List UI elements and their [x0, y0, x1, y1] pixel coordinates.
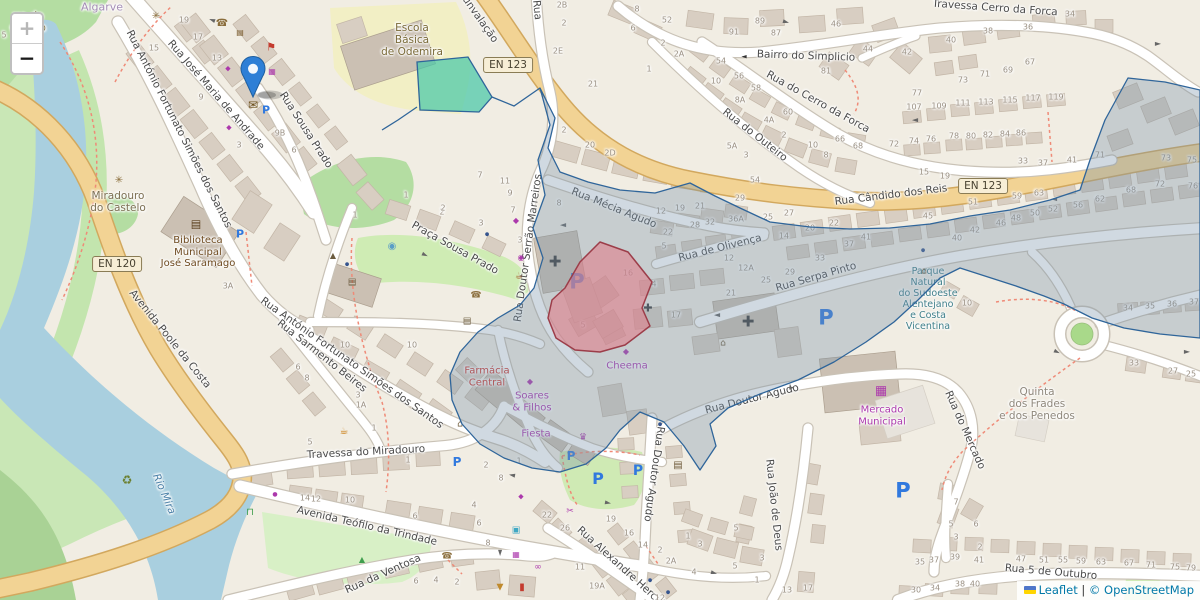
building [913, 539, 932, 553]
building [1026, 132, 1043, 144]
building [1095, 547, 1113, 561]
building [811, 524, 826, 543]
building [814, 240, 838, 256]
zoom-in-button[interactable]: + [12, 14, 42, 44]
building [797, 571, 815, 592]
building [692, 333, 720, 354]
building [966, 138, 983, 150]
ukraine-flag-icon [1024, 586, 1036, 594]
building [1173, 553, 1191, 567]
building [870, 231, 894, 247]
building [951, 103, 970, 117]
building [954, 217, 978, 233]
marker-shadow-core [258, 92, 276, 99]
building [666, 445, 683, 458]
building [1047, 93, 1066, 107]
building [667, 309, 693, 327]
building [1121, 549, 1139, 563]
building [772, 224, 796, 241]
attribution-separator: | [1078, 583, 1089, 597]
leaflet-link[interactable]: Leaflet [1039, 583, 1078, 597]
building [1006, 134, 1023, 146]
leaflet-map[interactable]: Rua José Maria de AndradeRua Sousa Prado… [0, 0, 1200, 600]
building [724, 204, 748, 220]
building [798, 15, 825, 33]
marker-pin-icon[interactable] [241, 57, 265, 98]
building [898, 226, 922, 242]
map-tiles [0, 0, 1200, 600]
building [982, 213, 1006, 229]
building [904, 144, 921, 156]
building [800, 220, 824, 237]
building [1023, 95, 1042, 109]
attribution-bar: Leaflet | © OpenStreetMap [1017, 581, 1200, 600]
building [1043, 543, 1061, 557]
building [699, 268, 724, 285]
building [1122, 191, 1146, 207]
building [986, 136, 1003, 148]
building [760, 9, 785, 26]
building [927, 107, 946, 121]
post-office-marker[interactable] [240, 56, 294, 102]
building [975, 101, 994, 115]
building [1010, 209, 1034, 225]
zoom-control: + − [10, 12, 44, 75]
building [836, 7, 863, 25]
building [622, 486, 639, 499]
zoom-out-button[interactable]: − [12, 44, 42, 73]
building [1069, 545, 1087, 559]
building [903, 110, 922, 124]
openstreetmap-link[interactable]: © OpenStreetMap [1089, 583, 1194, 597]
building [928, 35, 952, 53]
marker-pin-hole [248, 64, 258, 74]
building [639, 278, 664, 295]
building [965, 537, 983, 551]
building [1038, 204, 1062, 220]
building [1094, 196, 1118, 212]
building [999, 98, 1018, 112]
building [1066, 10, 1087, 25]
building [842, 235, 866, 251]
building [508, 575, 536, 597]
building [774, 326, 802, 357]
building [856, 211, 880, 228]
building [958, 54, 978, 69]
building [740, 546, 764, 566]
building [669, 273, 694, 290]
building [991, 539, 1009, 553]
building [618, 438, 635, 451]
building [686, 10, 714, 29]
building [828, 215, 852, 232]
building [808, 493, 825, 515]
copyright-text: © OpenStreetMap [1089, 583, 1194, 597]
building [1178, 183, 1200, 199]
building [475, 570, 501, 590]
building [786, 244, 810, 260]
building [946, 139, 963, 151]
building [598, 383, 627, 417]
building [1017, 541, 1035, 555]
building [633, 307, 663, 330]
building [924, 142, 941, 154]
building [724, 18, 749, 35]
building [670, 473, 687, 486]
building [1147, 551, 1165, 565]
building [835, 157, 857, 174]
building [926, 222, 950, 238]
building [1150, 187, 1174, 203]
building [934, 60, 954, 75]
building [1066, 200, 1090, 216]
